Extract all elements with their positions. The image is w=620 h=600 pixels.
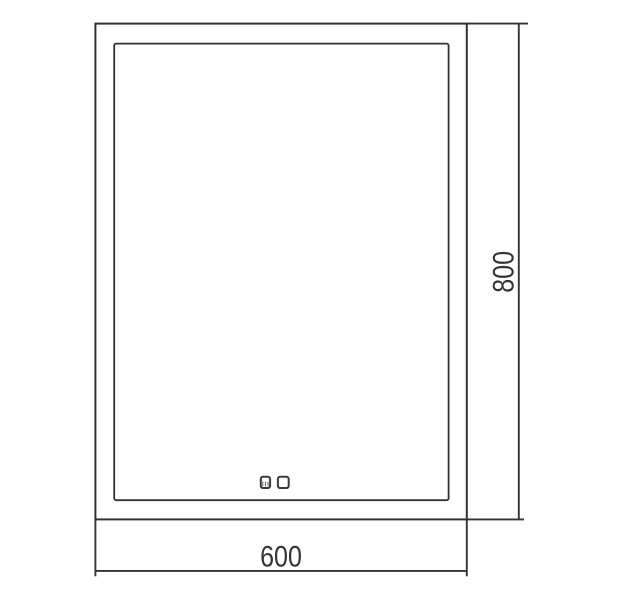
svg-text:600: 600 — [260, 540, 302, 573]
svg-text:800: 800 — [486, 251, 519, 293]
